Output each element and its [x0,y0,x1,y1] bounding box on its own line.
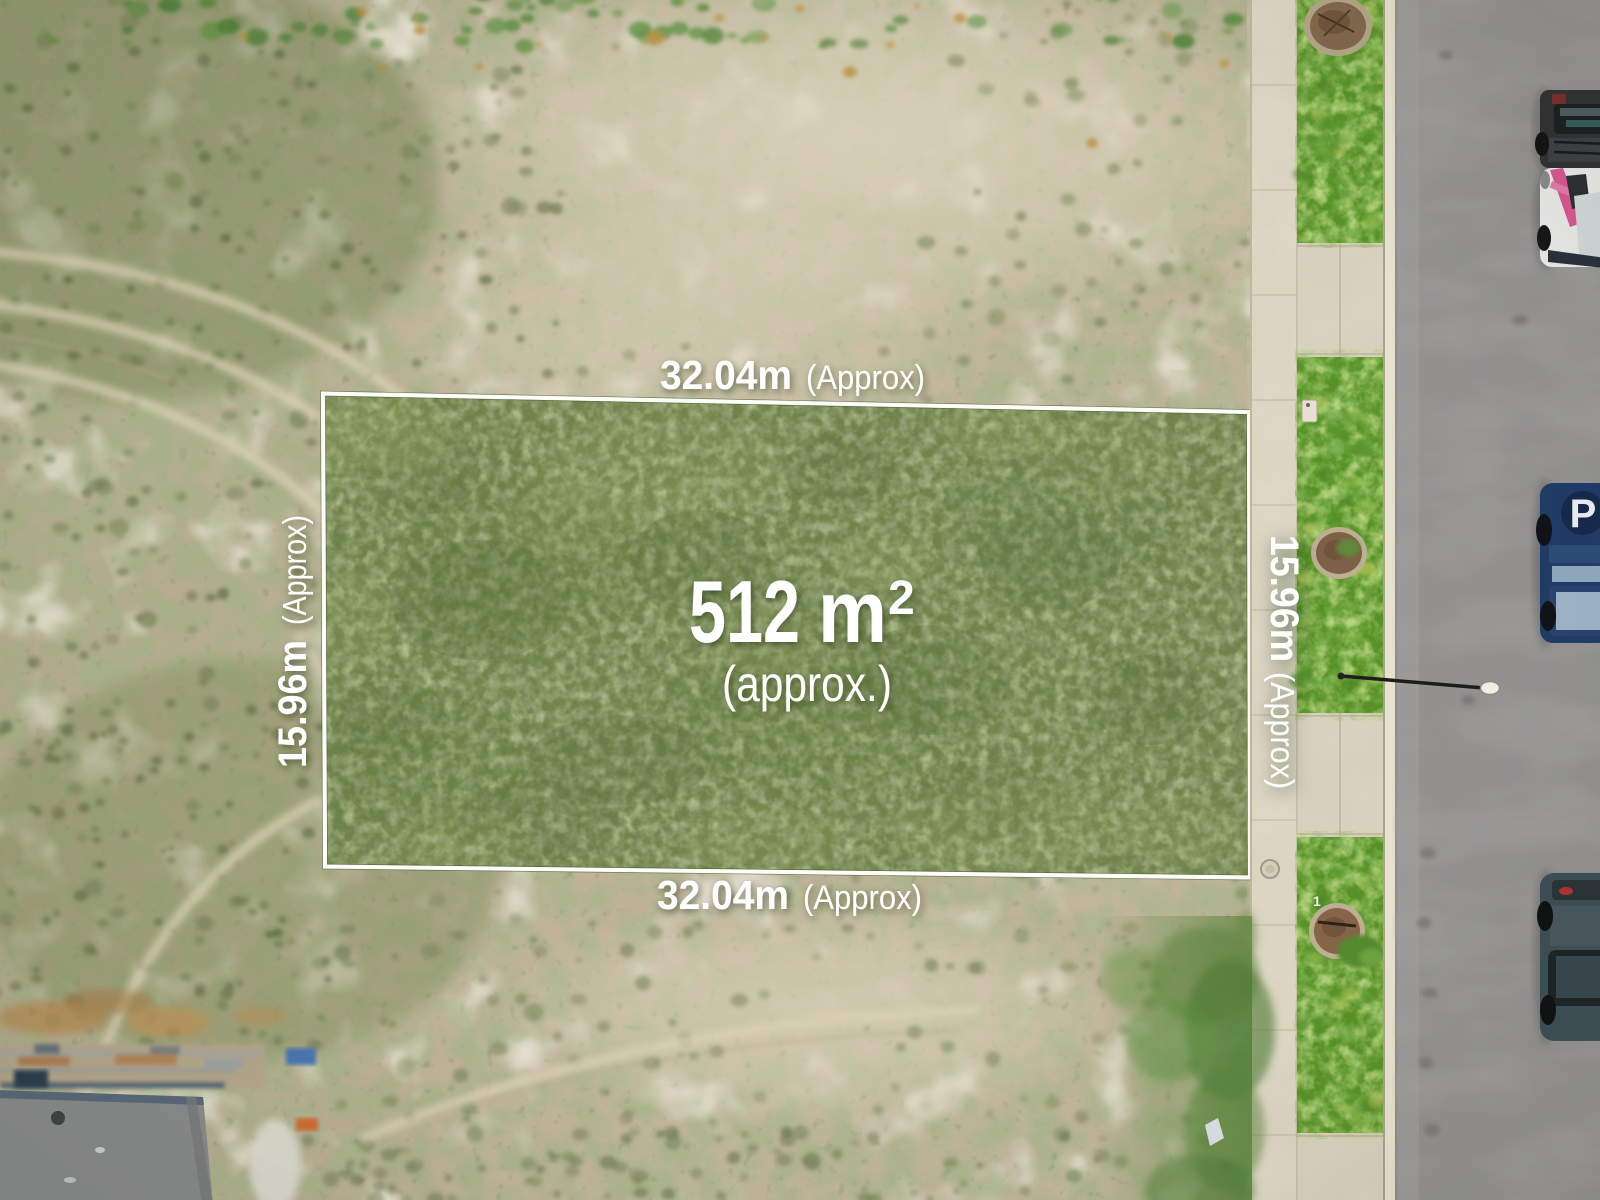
svg-text:32.04m: 32.04m [660,352,792,398]
svg-text:2: 2 [888,572,915,625]
svg-text:(Approx): (Approx) [806,359,925,397]
svg-text:m: m [818,562,887,661]
svg-text:(Approx): (Approx) [803,879,922,917]
svg-text:15.96m: 15.96m [271,640,315,768]
svg-text:32.04m: 32.04m [657,872,789,918]
svg-text:(Approx): (Approx) [1264,672,1301,789]
svg-text:512: 512 [689,562,800,661]
svg-text:(approx.): (approx.) [722,656,892,712]
svg-text:15.96m: 15.96m [1262,535,1306,662]
svg-text:(Approx): (Approx) [276,515,313,625]
